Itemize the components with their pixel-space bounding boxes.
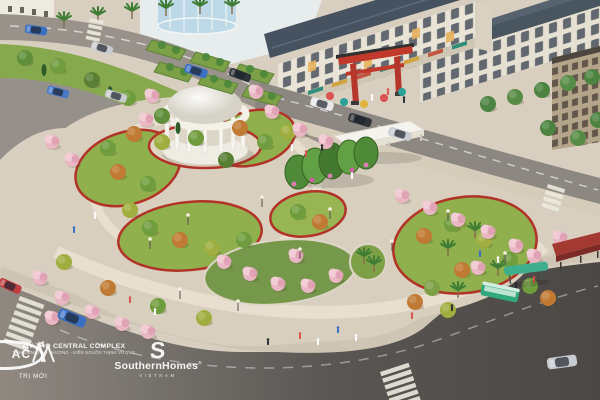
- aerial-render: AC TRỊ MỚI MỸ THO CENTRAL COMPLEX TÂM ĐI…: [0, 0, 600, 400]
- agency-country: VIETNAM: [139, 374, 177, 379]
- left-logo-subtext: TRỊ MỚI: [0, 373, 66, 380]
- watermark-agency: S SouthernHomes® VIETNAM: [112, 339, 204, 378]
- watermark-developer: MỸ THO CENTRAL COMPLEX TÂM ĐIỂM GIAO THƯ…: [30, 341, 118, 356]
- registered-mark: ®: [198, 361, 202, 366]
- scene-svg: [0, 0, 600, 400]
- s-monogram-icon: S: [150, 339, 167, 361]
